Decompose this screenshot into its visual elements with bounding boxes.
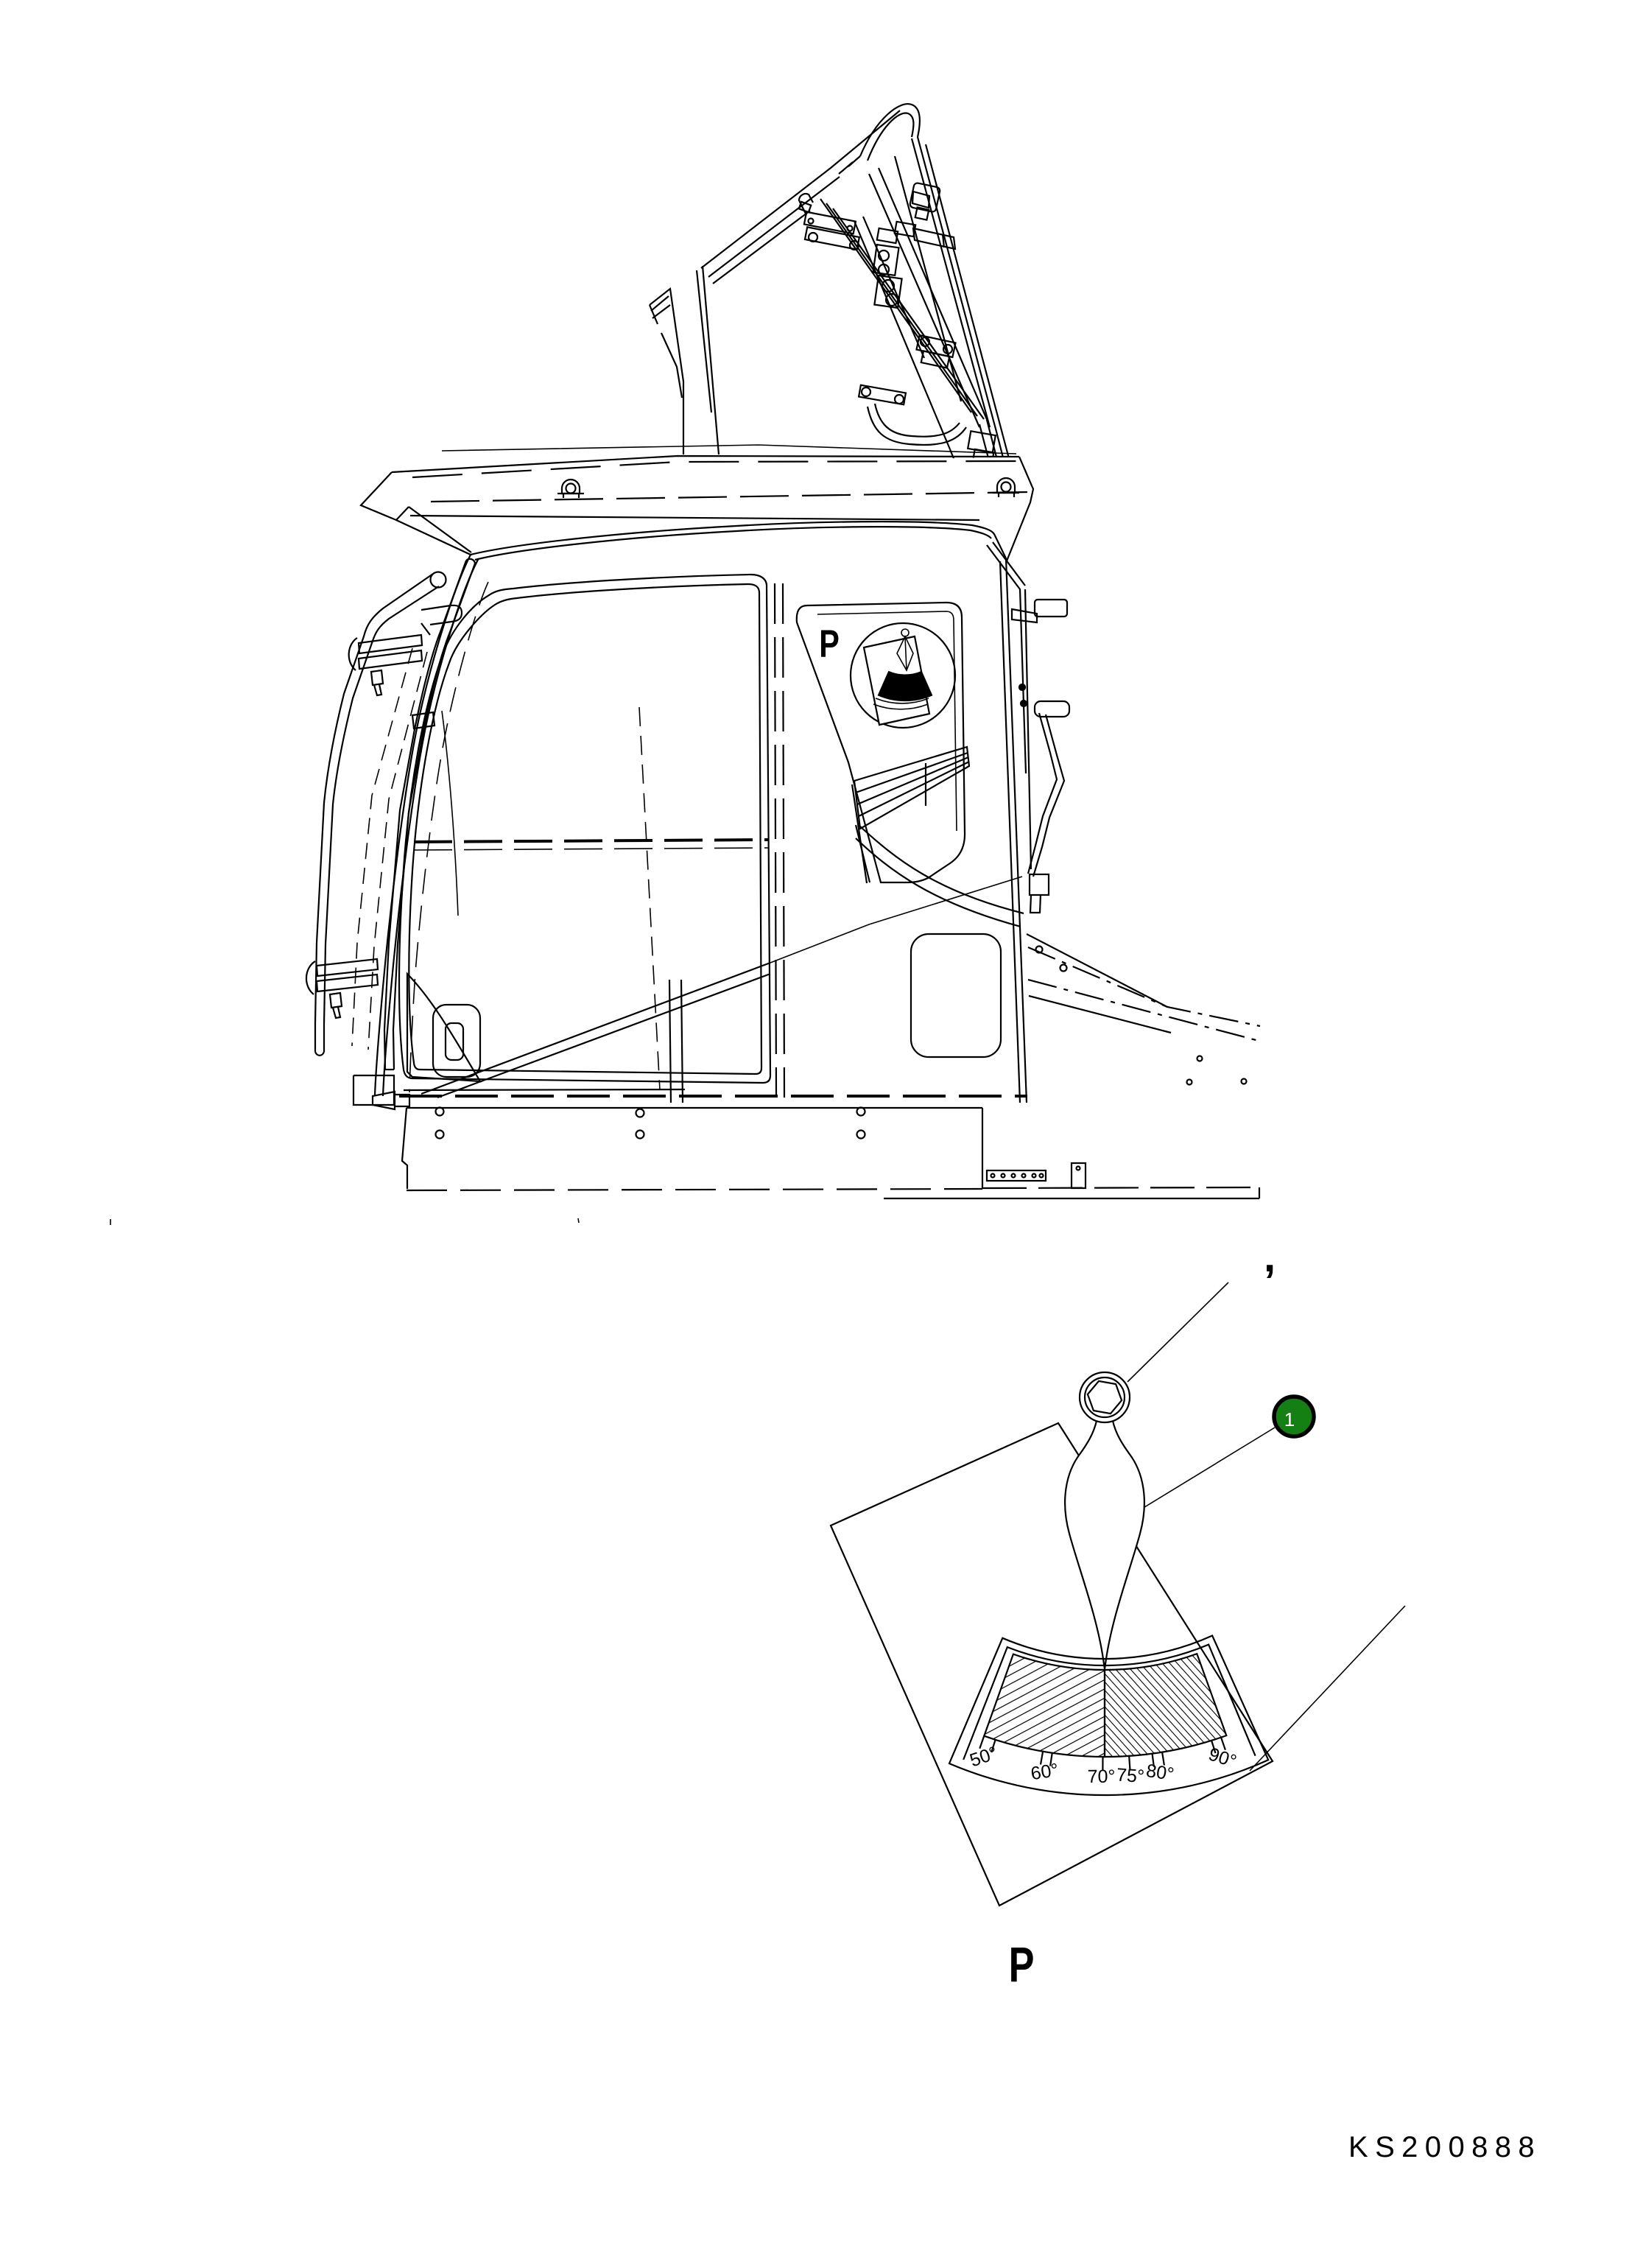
svg-text:70°: 70° <box>1087 1766 1115 1787</box>
svg-text:,: , <box>1264 1233 1276 1281</box>
svg-text:P: P <box>819 622 840 666</box>
svg-text:KS200888: KS200888 <box>1348 2131 1541 2163</box>
svg-text:P: P <box>1009 1937 1035 1993</box>
svg-text:80°: 80° <box>1144 1760 1175 1785</box>
svg-text:60°: 60° <box>1030 1760 1060 1785</box>
svg-text:75°: 75° <box>1116 1765 1145 1788</box>
svg-text:1: 1 <box>1284 1408 1295 1430</box>
